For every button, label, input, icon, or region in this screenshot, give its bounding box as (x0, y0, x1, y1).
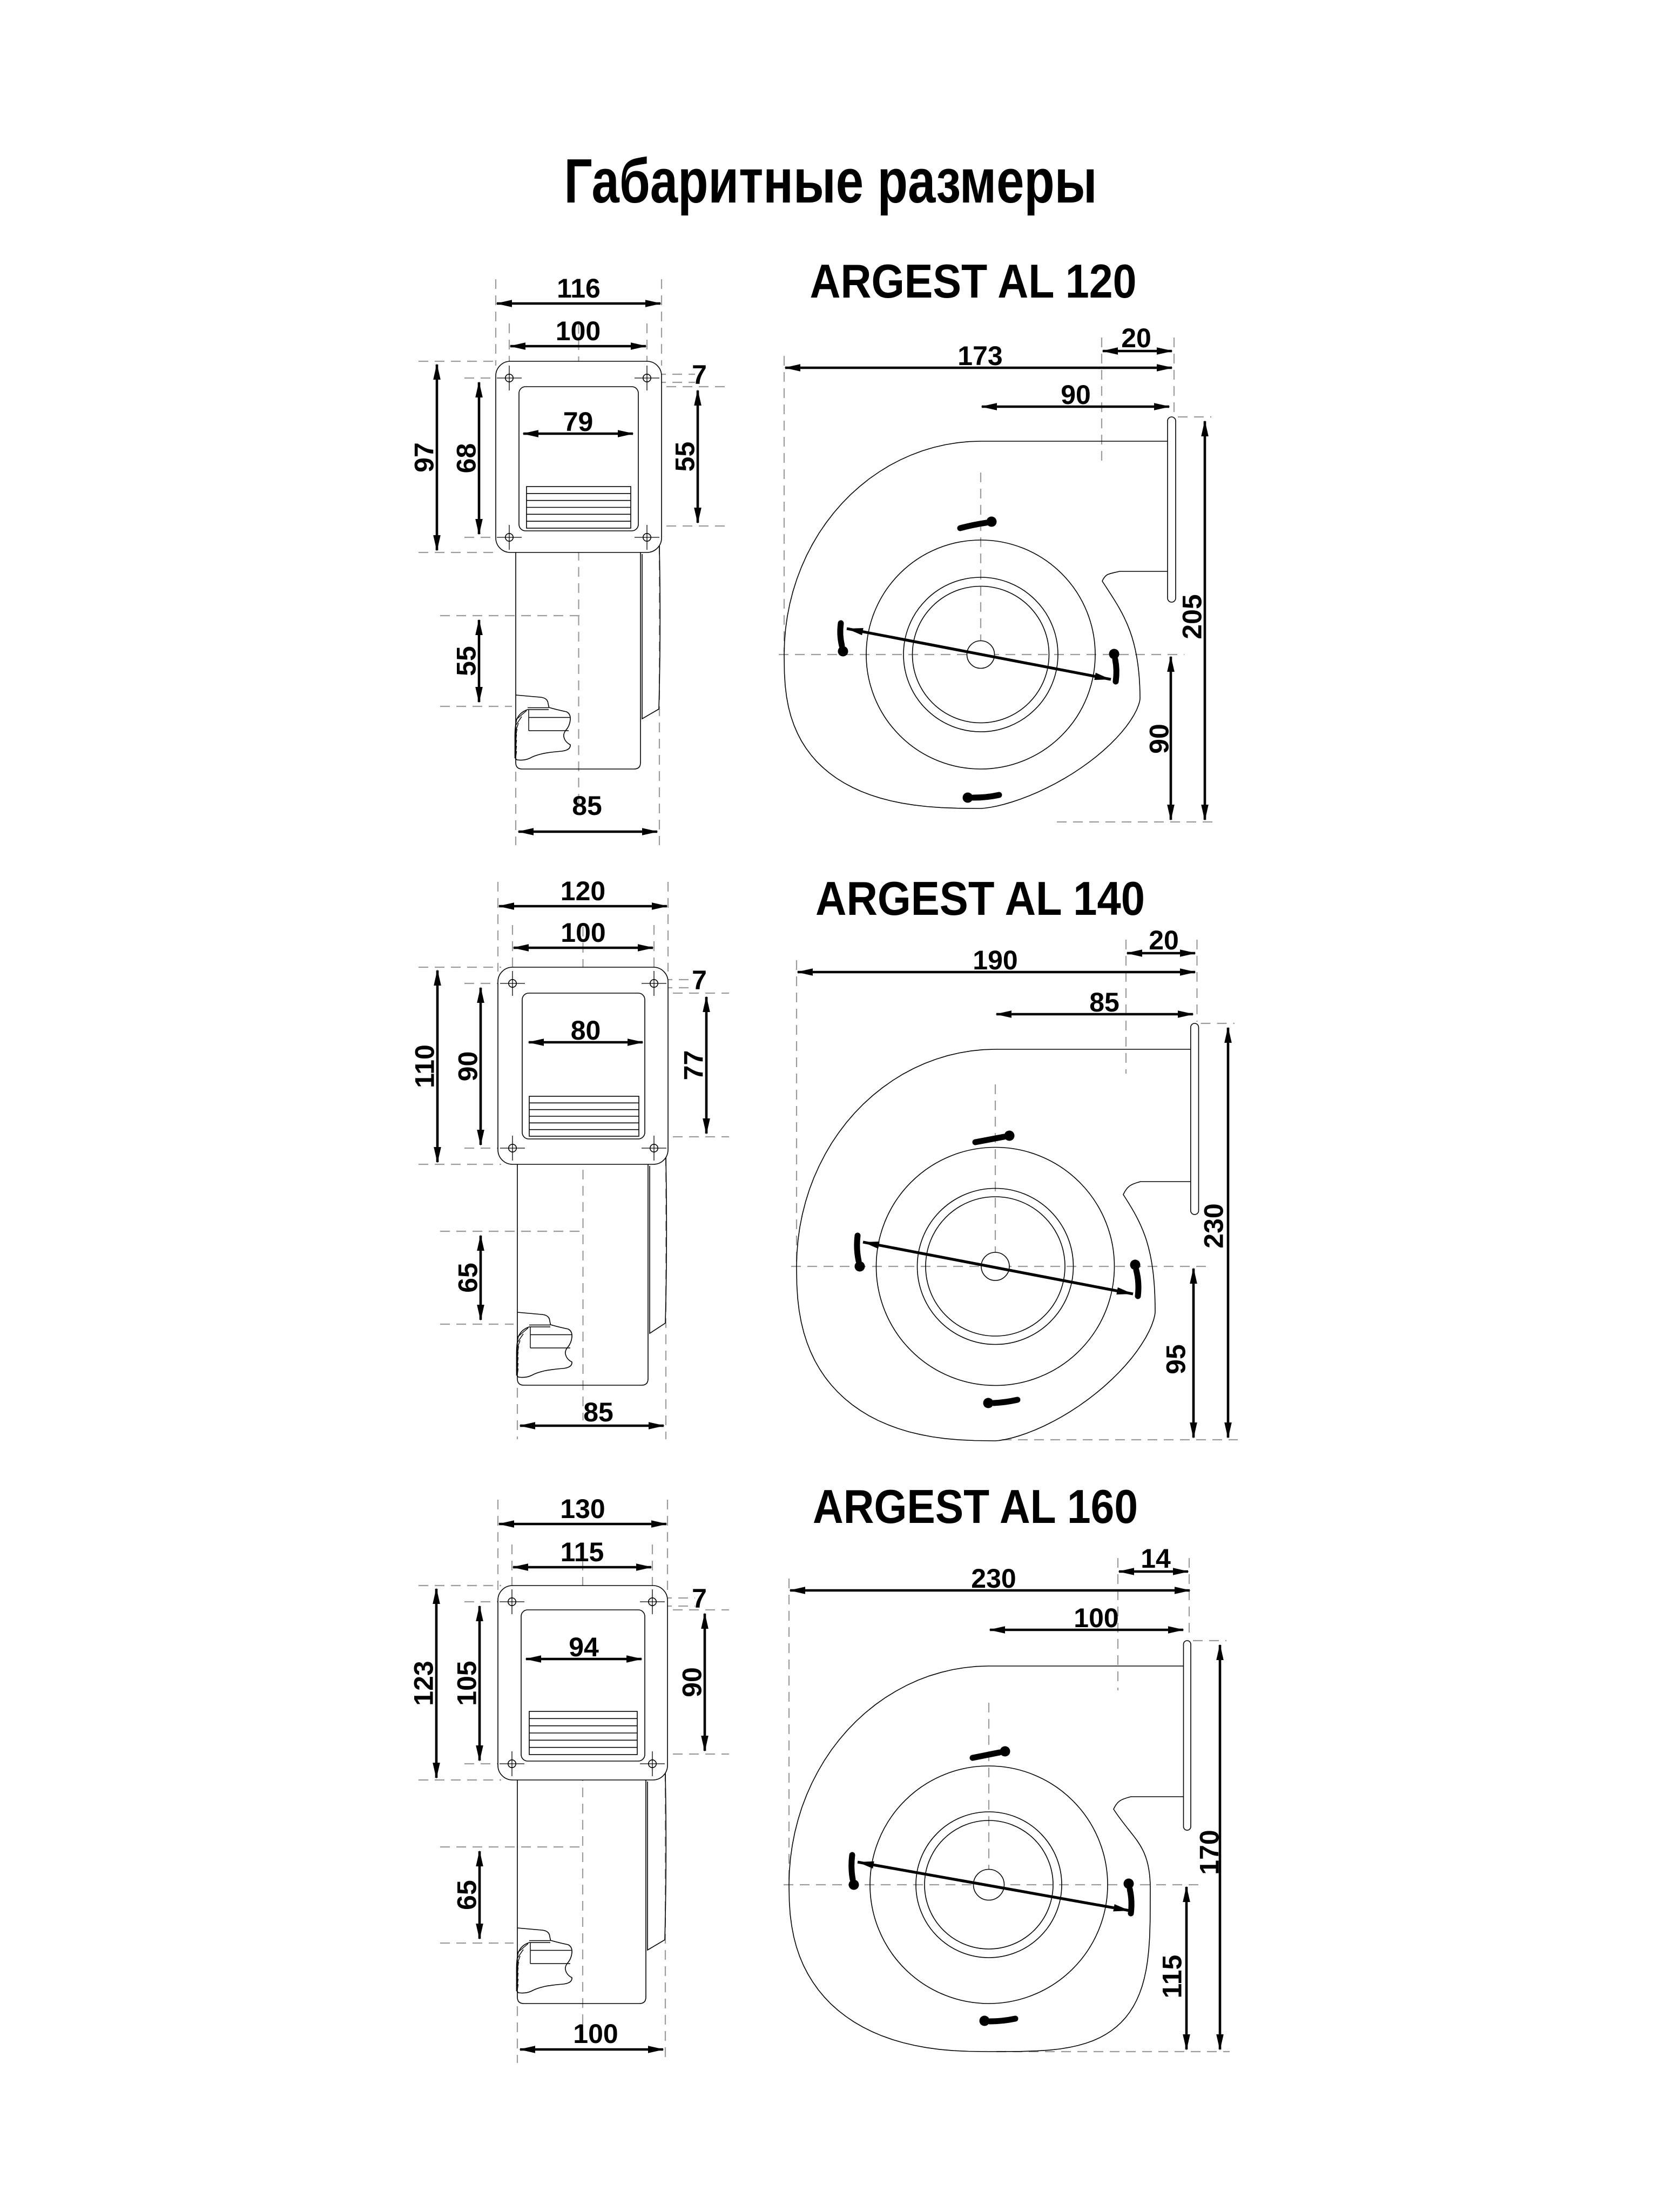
svg-text:20: 20 (1121, 323, 1151, 353)
svg-text:116: 116 (557, 273, 601, 304)
svg-text:170: 170 (1195, 1830, 1225, 1874)
svg-text:65: 65 (453, 1263, 483, 1293)
svg-text:100: 100 (573, 2019, 618, 2049)
svg-text:79: 79 (563, 407, 594, 437)
svg-text:7: 7 (692, 1583, 707, 1614)
svg-text:110: 110 (410, 1044, 440, 1088)
svg-text:115: 115 (1157, 1955, 1188, 1999)
svg-text:123: 123 (409, 1661, 439, 1705)
svg-text:85: 85 (1089, 987, 1120, 1017)
svg-text:Габаритные размеры: Габаритные размеры (564, 146, 1097, 216)
svg-text:85: 85 (583, 1397, 613, 1427)
svg-text:7: 7 (692, 965, 707, 995)
svg-text:68: 68 (451, 443, 482, 474)
svg-text:55: 55 (451, 646, 482, 676)
svg-text:230: 230 (1199, 1203, 1229, 1248)
svg-text:190: 190 (973, 945, 1017, 975)
svg-text:120: 120 (561, 876, 605, 906)
svg-text:105: 105 (452, 1661, 482, 1705)
svg-text:ARGEST AL 120: ARGEST AL 120 (810, 254, 1137, 308)
svg-text:90: 90 (677, 1667, 707, 1697)
svg-text:20: 20 (1149, 925, 1179, 955)
svg-text:130: 130 (560, 1494, 605, 1524)
svg-text:85: 85 (572, 791, 602, 821)
svg-text:90: 90 (453, 1051, 483, 1082)
svg-text:100: 100 (561, 918, 605, 948)
svg-text:95: 95 (1161, 1344, 1191, 1374)
svg-text:ARGEST AL 140: ARGEST AL 140 (815, 872, 1145, 925)
svg-text:14: 14 (1141, 1543, 1171, 1574)
svg-text:7: 7 (692, 360, 707, 390)
svg-text:55: 55 (670, 442, 700, 472)
svg-text:230: 230 (971, 1563, 1016, 1594)
svg-text:94: 94 (569, 1632, 599, 1662)
svg-text:100: 100 (556, 316, 601, 346)
svg-text:80: 80 (571, 1015, 601, 1046)
svg-text:90: 90 (1144, 724, 1175, 754)
svg-text:77: 77 (679, 1050, 709, 1081)
svg-text:205: 205 (1177, 594, 1208, 639)
svg-text:100: 100 (1074, 1603, 1118, 1633)
svg-text:173: 173 (957, 341, 1002, 371)
svg-text:97: 97 (409, 442, 440, 473)
svg-text:65: 65 (452, 1880, 482, 1910)
svg-text:90: 90 (1061, 380, 1091, 410)
svg-text:115: 115 (561, 1537, 604, 1567)
svg-text:ARGEST AL 160: ARGEST AL 160 (813, 1480, 1138, 1533)
